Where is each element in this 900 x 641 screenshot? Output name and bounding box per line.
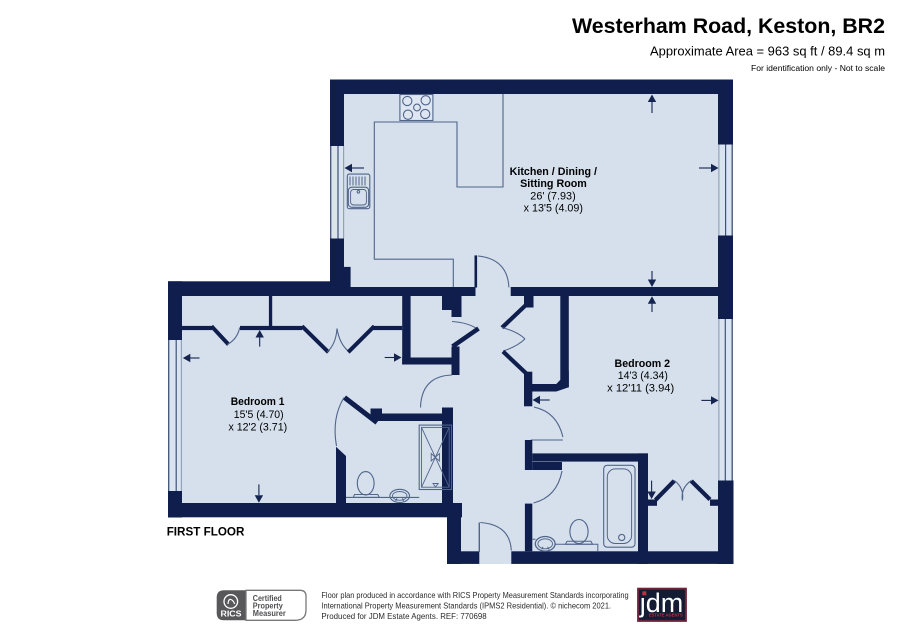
- svg-text:ESTATE AGENTS: ESTATE AGENTS: [649, 613, 683, 618]
- svg-text:x 12'2 (3.71): x 12'2 (3.71): [228, 421, 287, 433]
- svg-text:FIRST FLOOR: FIRST FLOOR: [167, 526, 245, 539]
- svg-text:International Property Measure: International Property Measurement Stand…: [321, 600, 611, 610]
- svg-text:Bedroom 1: Bedroom 1: [231, 396, 285, 408]
- svg-text:Floor plan produced in accorda: Floor plan produced in accordance with R…: [321, 590, 628, 600]
- svg-text:Produced for JDM Estate Agents: Produced for JDM Estate Agents. REF: 770…: [321, 611, 486, 621]
- svg-text:26' (7.93): 26' (7.93): [530, 190, 575, 202]
- svg-text:Bedroom 2: Bedroom 2: [615, 358, 671, 370]
- svg-text:x 12'11 (3.94): x 12'11 (3.94): [607, 383, 674, 395]
- svg-text:14'3 (4.34): 14'3 (4.34): [618, 370, 668, 382]
- svg-text:For identification only - Not: For identification only - Not to scale: [751, 63, 885, 73]
- svg-text:Kitchen / Dining /: Kitchen / Dining /: [510, 166, 597, 178]
- svg-text:RICS: RICS: [221, 610, 242, 619]
- svg-text:Sitting Room: Sitting Room: [520, 178, 587, 190]
- svg-text:Westerham Road, Keston, BR2: Westerham Road, Keston, BR2: [572, 14, 885, 38]
- svg-text:15'5 (4.70): 15'5 (4.70): [234, 409, 284, 421]
- svg-text:Measurer: Measurer: [253, 609, 286, 618]
- svg-text:Approximate Area = 963 sq ft /: Approximate Area = 963 sq ft / 89.4 sq m: [650, 44, 885, 59]
- svg-text:x 13'5 (4.09): x 13'5 (4.09): [524, 203, 583, 215]
